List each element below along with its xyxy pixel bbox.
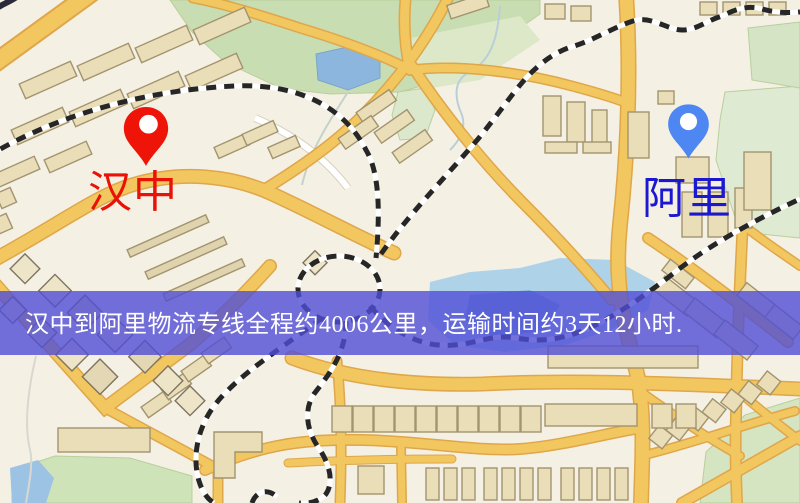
destination-label: 阿里 bbox=[642, 177, 732, 221]
logistics-map-image: 汉中到阿里物流专线全程约4006公里，运输时间约3天12小时. 汉中 阿里 bbox=[0, 0, 800, 503]
destination-pin-icon bbox=[665, 99, 712, 164]
map-canvas bbox=[0, 0, 800, 503]
origin-pin-icon bbox=[120, 105, 172, 168]
route-info-text: 汉中到阿里物流专线全程约4006公里，运输时间约3天12小时. bbox=[0, 304, 683, 343]
route-info-banner: 汉中到阿里物流专线全程约4006公里，运输时间约3天12小时. bbox=[0, 291, 800, 355]
origin-label: 汉中 bbox=[88, 171, 178, 215]
